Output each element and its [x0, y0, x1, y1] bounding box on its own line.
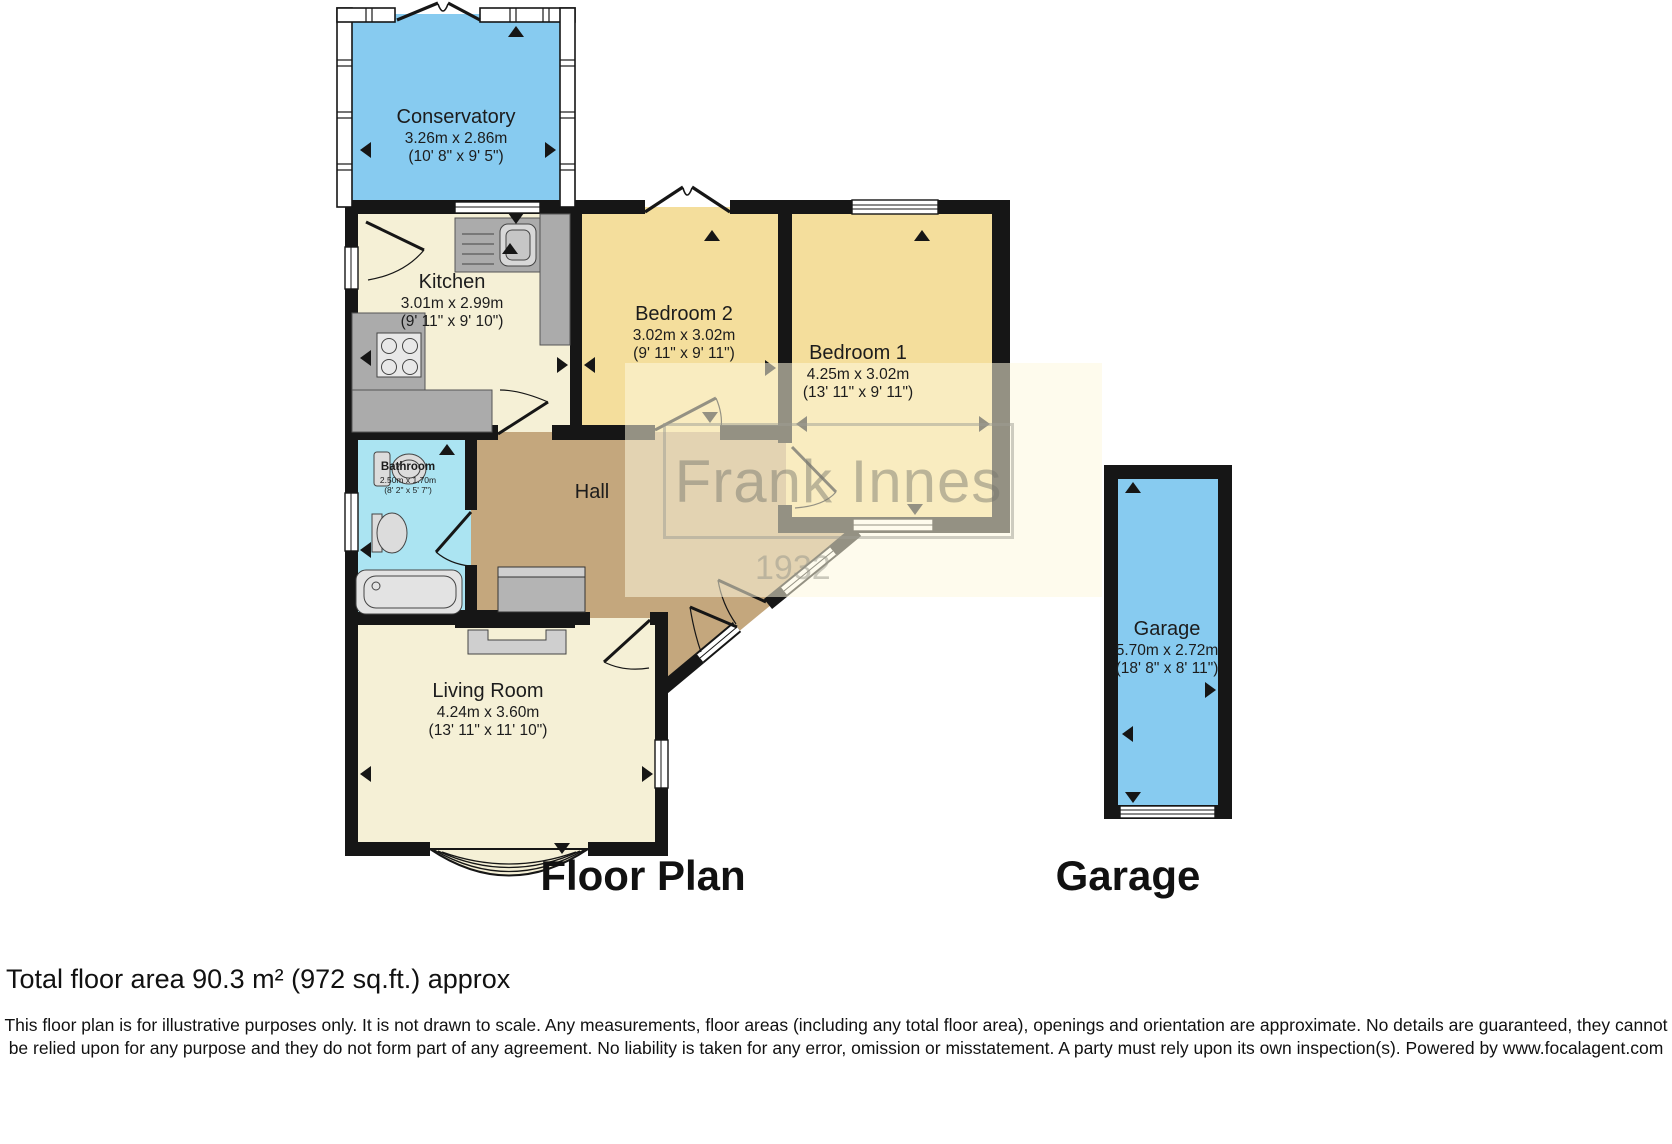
watermark-frame: Frank Innes	[663, 423, 1014, 539]
room-label-bedroom-2: Bedroom 2 3.02m x 3.02m (9' 11" x 9' 11"…	[633, 303, 736, 363]
wall-garage-right	[1218, 465, 1232, 819]
room-dims-metric: 3.26m x 2.86m	[397, 130, 516, 148]
room-dims-metric: 5.70m x 2.72m	[1116, 642, 1219, 660]
watermark-brand-text: Frank Innes	[675, 447, 1003, 516]
garage-door-opening	[1120, 806, 1215, 818]
room-dims-imperial: (8' 2" x 5' 7")	[380, 485, 436, 495]
room-label-hall: Hall	[575, 481, 609, 505]
room-name: Hall	[575, 481, 609, 505]
counter-bottom	[352, 390, 492, 432]
wall-living-bottom-left	[345, 842, 430, 856]
room-label-bathroom: Bathroom 2.50m x 1.70m (8' 2" x 5' 7")	[380, 461, 436, 495]
hall-cupboard-top	[498, 567, 585, 577]
window-bedroom1-top	[852, 200, 938, 214]
counter-column	[540, 214, 570, 345]
room-dims-imperial: (9' 11" x 9' 11")	[633, 345, 736, 363]
wall-living-right	[655, 612, 668, 856]
room-label-living-room: Living Room 4.24m x 3.60m (13' 11" x 11'…	[429, 680, 548, 740]
basin-icon	[377, 513, 407, 553]
room-label-kitchen: Kitchen 3.01m x 2.99m (9' 11" x 9' 10")	[401, 271, 504, 331]
watermark-year-text: 1932	[755, 549, 831, 588]
room-dims-metric: 3.02m x 3.02m	[633, 327, 736, 345]
room-label-bedroom-1: Bedroom 1 4.25m x 3.02m (13' 11" x 9' 11…	[803, 342, 913, 402]
room-dims-metric: 4.25m x 3.02m	[803, 366, 913, 384]
window-meeting-arc	[683, 188, 692, 195]
room-name: Kitchen	[401, 271, 504, 295]
room-dims-metric: 2.50m x 1.70m	[380, 475, 436, 485]
total-floor-area-text: Total floor area 90.3 m² (972 sq.ft.) ap…	[6, 964, 510, 995]
garage-title: Garage	[1056, 852, 1201, 900]
room-dims-imperial: (10' 8" x 9' 5")	[397, 148, 516, 166]
floor-plan-page: Frank Innes 1932 Conservatory 3.26m x 2.…	[0, 0, 1672, 1144]
wall-garage-top	[1104, 465, 1232, 479]
room-name: Garage	[1116, 618, 1219, 642]
room-label-garage: Garage 5.70m x 2.72m (18' 8" x 8' 11")	[1116, 618, 1219, 678]
room-name: Living Room	[429, 680, 548, 704]
room-dims-metric: 4.24m x 3.60m	[429, 704, 548, 722]
disclaimer-text: This floor plan is for illustrative purp…	[0, 1014, 1672, 1061]
conservatory-window-left	[337, 8, 352, 207]
room-name: Conservatory	[397, 106, 516, 130]
room-name: Bathroom	[380, 461, 436, 475]
room-name: Bedroom 2	[633, 303, 736, 327]
room-dims-imperial: (13' 11" x 11' 10")	[429, 722, 548, 740]
wall-bathroom-right-upper	[465, 440, 477, 510]
room-label-conservatory: Conservatory 3.26m x 2.86m (10' 8" x 9' …	[397, 106, 516, 166]
hall-fixtures	[498, 567, 585, 612]
door-meeting-arc	[438, 4, 448, 11]
wall-kitchen-bedroom2	[570, 207, 582, 432]
room-dims-imperial: (9' 11" x 9' 10")	[401, 313, 504, 331]
conservatory-window-right	[560, 8, 575, 207]
room-name: Bedroom 1	[803, 342, 913, 366]
wall-chimney-breast	[455, 610, 575, 628]
room-dims-imperial: (18' 8" x 8' 11")	[1116, 660, 1219, 678]
room-dims-metric: 3.01m x 2.99m	[401, 295, 504, 313]
room-dims-imperial: (13' 11" x 9' 11")	[803, 384, 913, 402]
floor-plan-title: Floor Plan	[540, 852, 745, 900]
